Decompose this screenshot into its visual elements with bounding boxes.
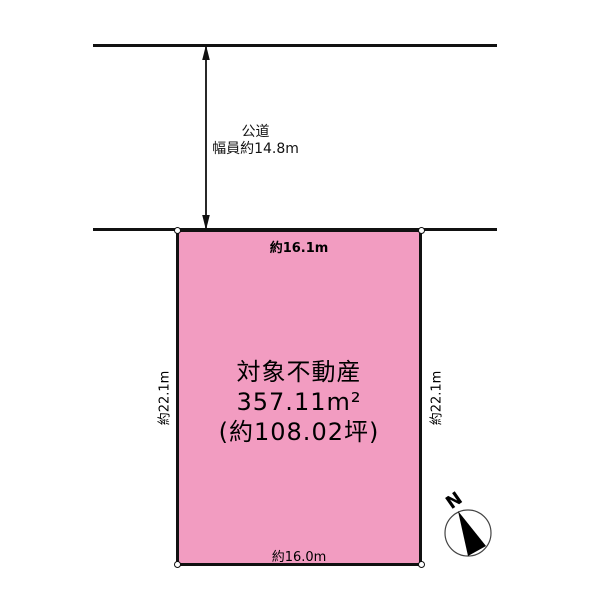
road-width-label: 幅員約14.8m (183, 141, 328, 158)
road-label: 公道 幅員約14.8m (183, 124, 328, 158)
corner-marker-bottom-right (418, 561, 425, 568)
road-name: 公道 (183, 124, 328, 141)
parcel-dim-top: 約16.1m (176, 237, 422, 256)
compass: N (435, 483, 505, 575)
corner-marker-top-left (174, 227, 181, 234)
parcel-title: 対象不動産 (176, 357, 422, 387)
corner-marker-top-right (418, 227, 425, 234)
parcel-area-tsubo: (約108.02坪) (176, 417, 422, 447)
site-plan-diagram: 公道 幅員約14.8m 約16.1m 約16.0m 約22.1m 約22.1m … (0, 0, 600, 600)
arrowhead-down-icon (202, 215, 210, 230)
parcel-dim-right: 約22.1m (426, 371, 445, 426)
parcel-area-m2: 357.11m² (176, 387, 422, 417)
parcel-dim-left: 約22.1m (154, 371, 173, 426)
north-label: N (442, 488, 466, 514)
parcel-label: 対象不動産 357.11m² (約108.02坪) (176, 357, 422, 447)
parcel-dim-bottom: 約16.0m (176, 546, 422, 565)
corner-marker-bottom-left (174, 561, 181, 568)
arrowhead-up-icon (202, 45, 210, 60)
road-edge-line-far (93, 44, 497, 47)
